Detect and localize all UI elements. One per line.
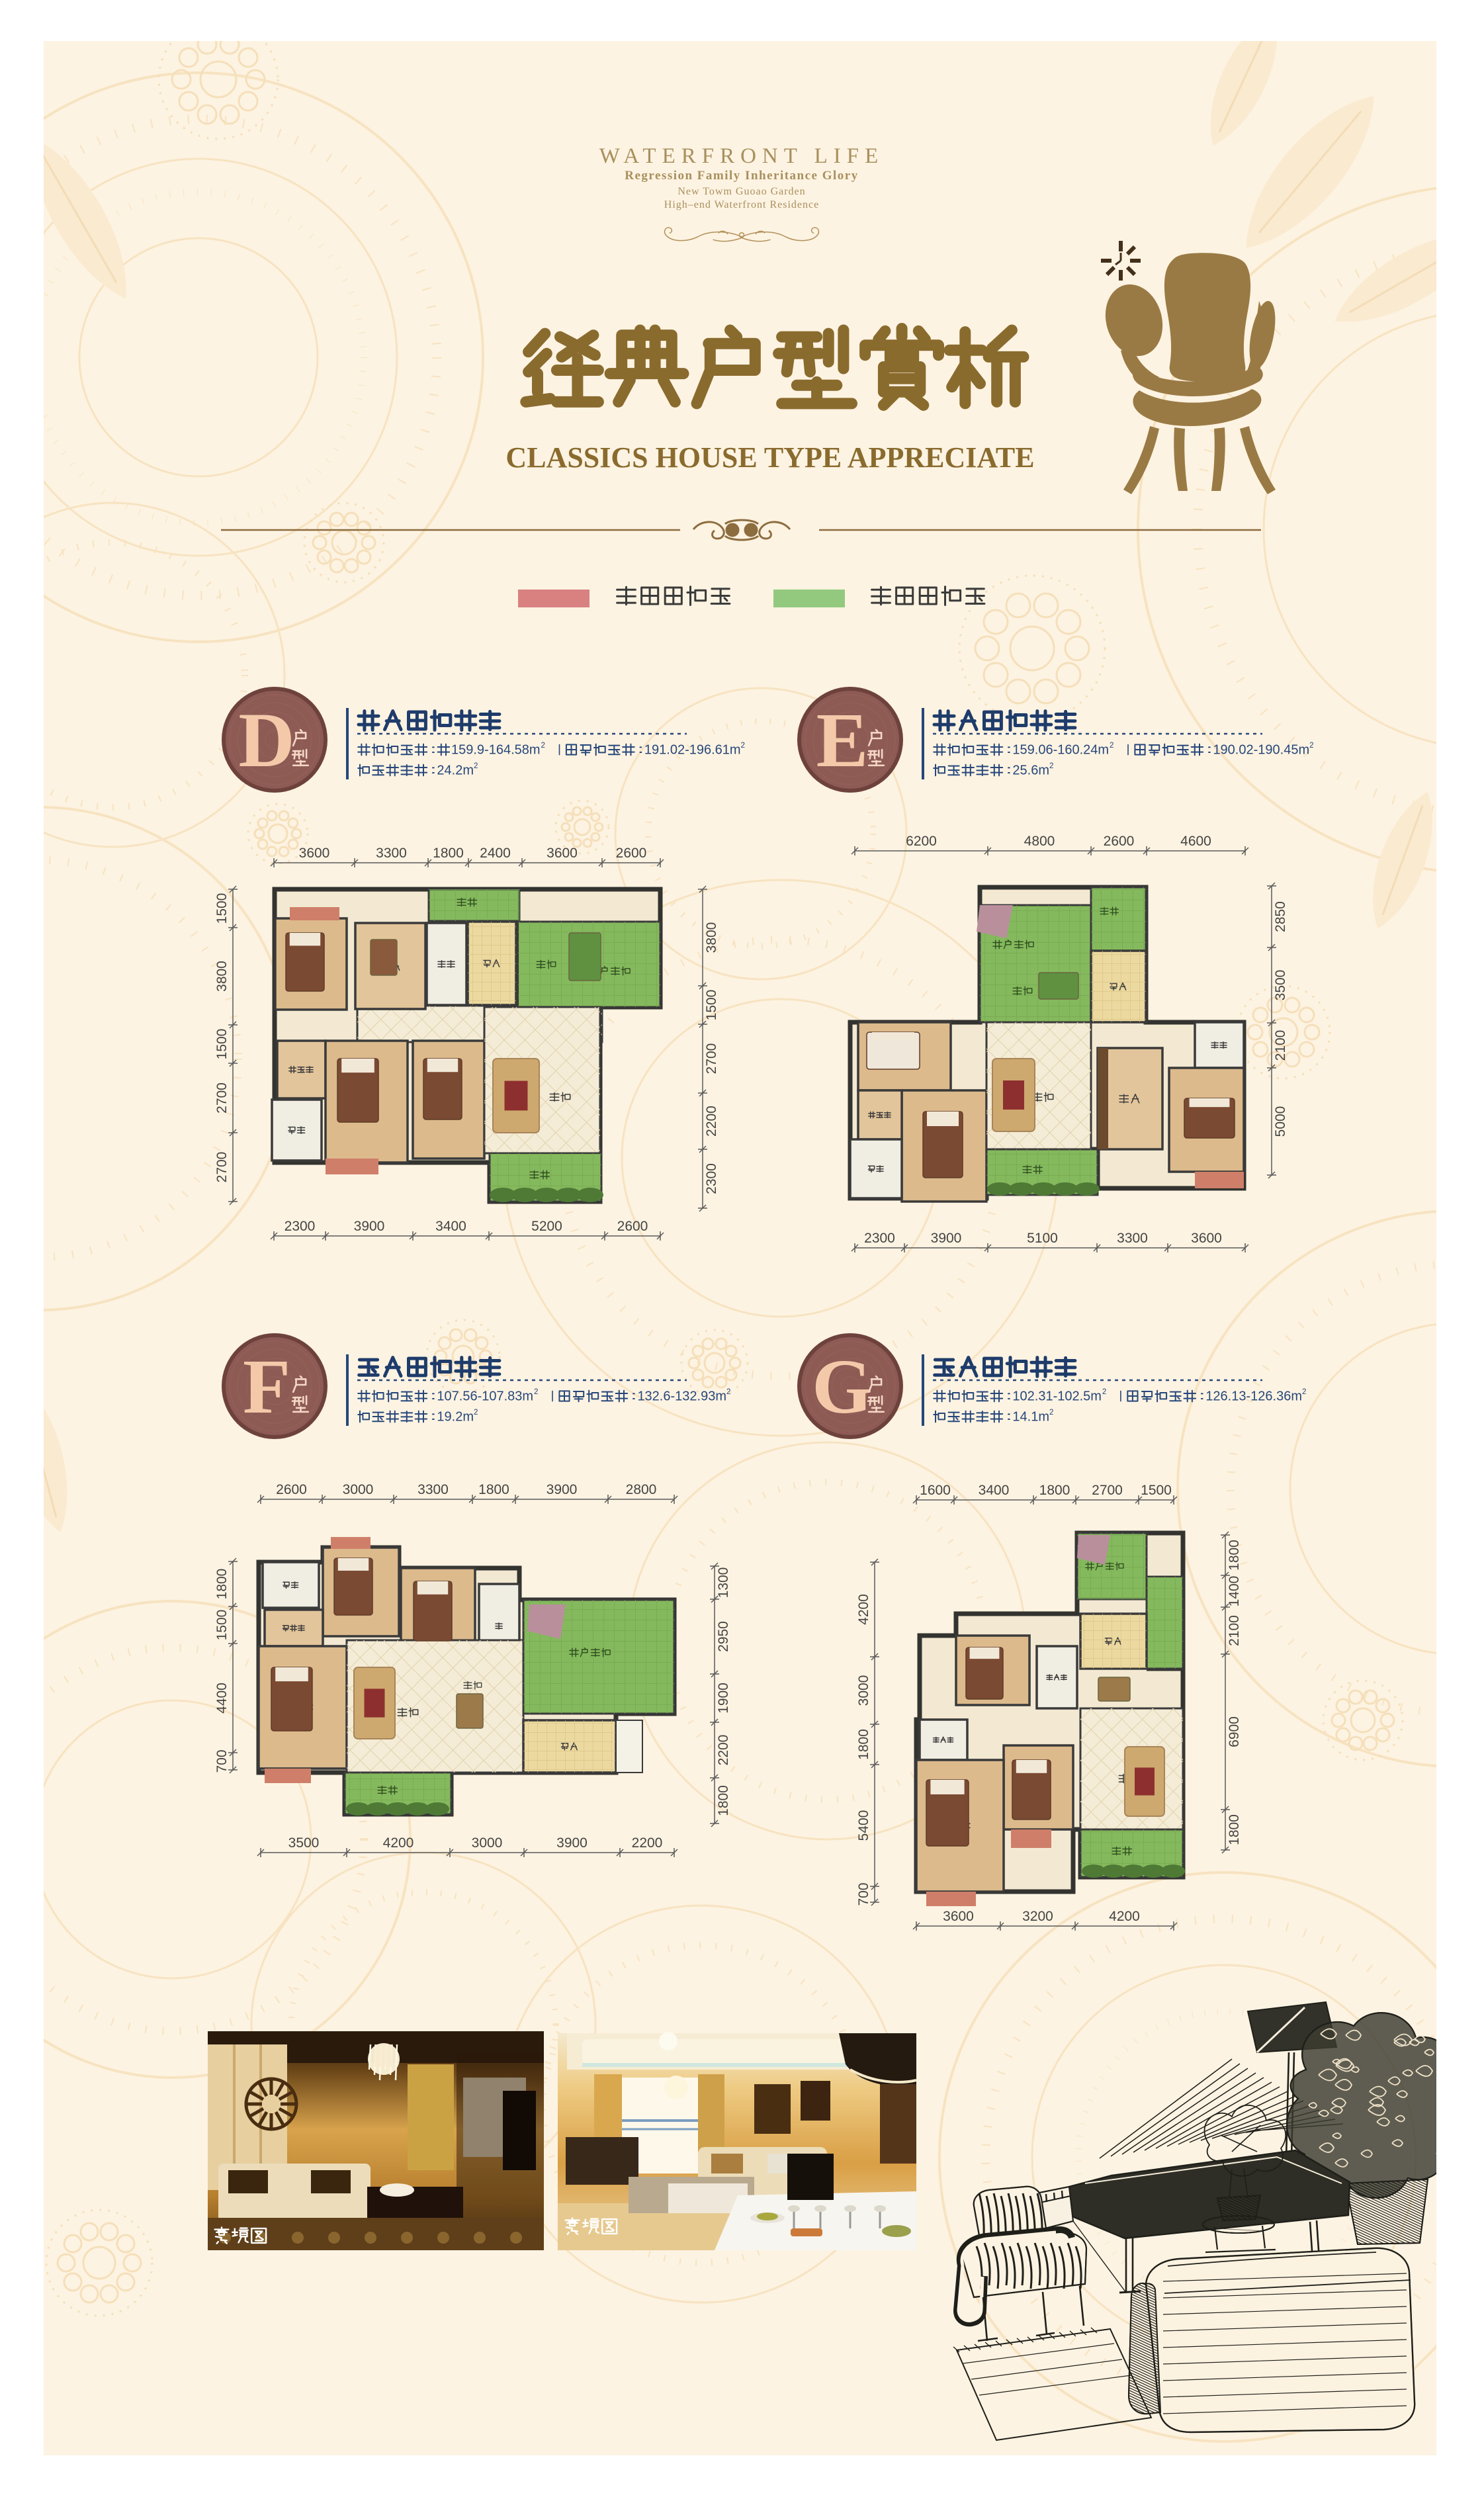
svg-text:3000: 3000 — [343, 1482, 374, 1497]
svg-text:3500: 3500 — [1273, 970, 1288, 1001]
svg-text:1500: 1500 — [214, 1029, 230, 1060]
svg-text:3200: 3200 — [1022, 1909, 1053, 1924]
svg-text:1800: 1800 — [214, 1569, 230, 1600]
svg-text:190.02-190.45m: 190.02-190.45m — [1213, 742, 1309, 757]
svg-text:2: 2 — [1102, 1387, 1106, 1396]
svg-text:2200: 2200 — [716, 1735, 731, 1766]
svg-text:3500: 3500 — [288, 1835, 320, 1851]
svg-text:2: 2 — [474, 1408, 478, 1417]
svg-text:3300: 3300 — [417, 1482, 449, 1497]
svg-text:1800: 1800 — [1039, 1483, 1070, 1498]
svg-text:New Towm Guoao Garden: New Towm Guoao Garden — [677, 186, 805, 197]
svg-text:4200: 4200 — [383, 1835, 414, 1851]
svg-text:2700: 2700 — [704, 1043, 719, 1075]
svg-text:D: D — [238, 697, 294, 783]
svg-text:2600: 2600 — [1104, 834, 1135, 849]
svg-text:3300: 3300 — [1117, 1231, 1148, 1246]
svg-text:4200: 4200 — [856, 1594, 871, 1625]
svg-text:126.13-126.36m: 126.13-126.36m — [1205, 1389, 1302, 1403]
svg-text:700: 700 — [214, 1749, 230, 1773]
svg-text:6900: 6900 — [1227, 1716, 1242, 1747]
svg-text:1400: 1400 — [1227, 1576, 1242, 1607]
svg-text:3600: 3600 — [943, 1909, 974, 1924]
svg-text:2: 2 — [1049, 762, 1053, 770]
svg-text:3800: 3800 — [214, 961, 230, 992]
svg-text:2850: 2850 — [1273, 901, 1288, 932]
svg-text:G: G — [812, 1343, 873, 1430]
svg-text:1500: 1500 — [214, 1610, 230, 1641]
svg-text:19.2m: 19.2m — [437, 1409, 474, 1424]
svg-text:2: 2 — [1309, 741, 1313, 750]
svg-text:4600: 4600 — [1180, 834, 1211, 849]
svg-text:3900: 3900 — [556, 1835, 588, 1851]
svg-text:3000: 3000 — [472, 1835, 503, 1851]
svg-text:2: 2 — [534, 1387, 538, 1396]
svg-text:107.56-107.83m: 107.56-107.83m — [437, 1389, 533, 1403]
svg-text:1900: 1900 — [716, 1683, 731, 1714]
svg-text:3900: 3900 — [546, 1482, 578, 1497]
svg-text:2600: 2600 — [616, 846, 647, 861]
svg-text:1500: 1500 — [1141, 1483, 1172, 1498]
svg-text:2: 2 — [1110, 741, 1113, 750]
svg-text:2: 2 — [726, 1387, 730, 1396]
svg-text:2400: 2400 — [480, 846, 511, 861]
svg-text:2600: 2600 — [617, 1219, 648, 1234]
svg-text:High–end Waterfront Residence: High–end Waterfront Residence — [664, 199, 819, 210]
svg-text:2700: 2700 — [1092, 1483, 1123, 1498]
svg-text:WATERFRONT LIFE: WATERFRONT LIFE — [599, 144, 885, 168]
svg-text:1800: 1800 — [856, 1729, 871, 1760]
svg-text:3400: 3400 — [435, 1219, 466, 1234]
svg-text:2: 2 — [541, 741, 545, 750]
svg-text:CLASSICS HOUSE TYPE APPRECIATE: CLASSICS HOUSE TYPE APPRECIATE — [505, 441, 1034, 474]
svg-text:2800: 2800 — [626, 1482, 657, 1497]
svg-text:5200: 5200 — [531, 1219, 562, 1234]
svg-text:132.6-132.93m: 132.6-132.93m — [637, 1389, 726, 1403]
svg-text:3400: 3400 — [979, 1483, 1010, 1498]
svg-text:2: 2 — [1302, 1387, 1306, 1396]
svg-text:2300: 2300 — [864, 1231, 895, 1246]
svg-text:102.31-102.5m: 102.31-102.5m — [1012, 1389, 1102, 1403]
svg-text:3600: 3600 — [546, 846, 578, 861]
svg-text:25.6m: 25.6m — [1012, 763, 1049, 777]
svg-text:24.2m: 24.2m — [437, 763, 474, 777]
svg-text:5100: 5100 — [1027, 1231, 1058, 1246]
svg-text:3000: 3000 — [856, 1675, 871, 1706]
svg-text:3600: 3600 — [1191, 1231, 1222, 1246]
svg-text:1500: 1500 — [214, 893, 230, 924]
svg-text:1800: 1800 — [1227, 1540, 1242, 1571]
svg-text:2: 2 — [741, 741, 745, 750]
svg-text:2700: 2700 — [214, 1152, 230, 1183]
svg-text:1800: 1800 — [716, 1785, 731, 1816]
svg-text:F: F — [243, 1343, 290, 1430]
svg-text:3900: 3900 — [354, 1219, 385, 1234]
svg-text:2200: 2200 — [704, 1106, 719, 1137]
svg-text:2700: 2700 — [214, 1082, 230, 1114]
svg-text:2: 2 — [1049, 1408, 1053, 1417]
svg-text:3600: 3600 — [299, 846, 330, 861]
svg-text:1600: 1600 — [920, 1483, 951, 1498]
svg-text:191.02-196.61m: 191.02-196.61m — [644, 742, 741, 757]
svg-text:4400: 4400 — [214, 1683, 230, 1714]
svg-text:Regression Family Inheritance: Regression Family Inheritance Glory — [625, 169, 858, 183]
svg-text:6200: 6200 — [906, 834, 937, 849]
svg-text:2300: 2300 — [284, 1219, 316, 1234]
svg-text:2300: 2300 — [704, 1163, 719, 1194]
svg-text:E: E — [816, 697, 869, 783]
svg-text:159.06-160.24m: 159.06-160.24m — [1012, 742, 1109, 757]
svg-text:700: 700 — [856, 1882, 871, 1906]
svg-text:2600: 2600 — [276, 1482, 307, 1497]
svg-text:3800: 3800 — [704, 922, 719, 953]
svg-text:4800: 4800 — [1024, 834, 1055, 849]
svg-text:2200: 2200 — [632, 1835, 663, 1851]
svg-text:3900: 3900 — [931, 1231, 962, 1246]
svg-text:1300: 1300 — [716, 1567, 731, 1599]
svg-text:1800: 1800 — [433, 846, 464, 861]
svg-text:4200: 4200 — [1109, 1909, 1140, 1924]
svg-text:5400: 5400 — [856, 1810, 871, 1841]
svg-text:159.9-164.58m: 159.9-164.58m — [451, 742, 541, 757]
svg-text:1800: 1800 — [1227, 1814, 1242, 1845]
svg-text:1800: 1800 — [478, 1482, 509, 1497]
svg-text:14.1m: 14.1m — [1012, 1409, 1049, 1424]
svg-text:1500: 1500 — [704, 990, 719, 1021]
svg-text:2950: 2950 — [716, 1621, 731, 1652]
svg-text:2100: 2100 — [1227, 1615, 1242, 1646]
svg-text:3300: 3300 — [376, 846, 407, 861]
svg-text:5000: 5000 — [1273, 1106, 1288, 1137]
svg-text:2100: 2100 — [1273, 1030, 1288, 1061]
svg-text:2: 2 — [474, 762, 478, 770]
